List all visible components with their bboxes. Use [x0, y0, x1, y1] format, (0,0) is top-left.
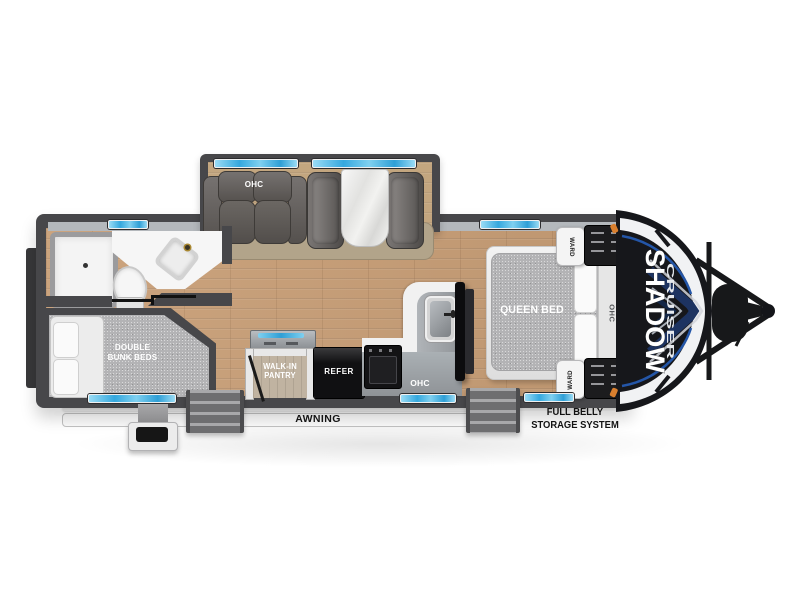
bathroom-door-stop — [151, 295, 154, 305]
awning-label: AWNING — [283, 413, 353, 425]
sofa-seat-cushion — [254, 200, 291, 244]
entry-steps-main — [186, 390, 244, 433]
refrigerator-label: REFER — [314, 367, 364, 376]
floorplan-canvas: AWNING FULL BELLY STORAGE SYSTEM OHC — [0, 0, 800, 600]
wardrobe-rear-label: WARD — [568, 237, 574, 257]
outdoor-griddle-top — [136, 427, 168, 442]
kitchen-ohc-label: OHC — [398, 379, 442, 389]
bunk-pillow — [53, 359, 79, 395]
refrigerator: REFER — [314, 348, 364, 398]
shower-drain — [83, 263, 88, 268]
window-bedroom-top — [480, 220, 540, 229]
window-slide-dinette — [312, 159, 416, 168]
walk-in-pantry-label: WALK-IN PANTRY — [252, 362, 309, 380]
pantry-counter-handle — [264, 342, 276, 345]
sink-faucet — [185, 245, 190, 250]
outdoor-griddle-mount — [138, 404, 168, 424]
propane-tank-cover — [712, 284, 748, 342]
kitchen-sink — [425, 296, 456, 342]
dinette-table — [341, 169, 389, 247]
pantry-counter-light — [258, 333, 304, 338]
bed-pillow — [574, 259, 597, 313]
window-bathroom-top — [108, 220, 148, 229]
tv-panel-back — [465, 289, 474, 374]
pantry-counter-handle — [286, 342, 298, 345]
entry-steps-bedroom — [466, 388, 520, 433]
bunkroom-label: DOUBLE BUNK BEDS — [92, 343, 173, 363]
wardrobe-front-label: WARD — [568, 370, 574, 390]
dinette-bench-left — [307, 172, 344, 249]
tv-panel — [455, 282, 465, 381]
pantry-wall-top — [246, 349, 314, 356]
stove — [364, 345, 402, 389]
wardrobe-rear: WARD — [556, 227, 585, 266]
brand-name-secondary: CRUISER — [664, 263, 675, 361]
bathroom-door-line — [152, 295, 196, 298]
queen-bed-label: QUEEN BED — [492, 304, 572, 317]
dinette-bench-right — [386, 172, 424, 249]
window-kitchen-bottom — [400, 394, 456, 403]
bathroom-wall — [44, 296, 112, 307]
awning-rail-lower — [62, 413, 482, 427]
hitch-ball — [761, 304, 775, 318]
pantry-label-line1: WALK-IN — [252, 362, 309, 371]
front-cap: SHADOW CRUISER — [596, 200, 786, 422]
window-bedroom-bottom — [524, 393, 574, 402]
bathroom-wall-stub — [222, 226, 232, 264]
kitchen-sink-basin — [430, 301, 451, 337]
bunkroom-label-line2: BUNK BEDS — [92, 353, 173, 363]
sofa-ohc-label: OHC — [224, 180, 284, 189]
bathroom-door-line — [112, 299, 152, 302]
pantry-label-line2: PANTRY — [252, 371, 309, 380]
bunk-pillow — [53, 322, 79, 358]
window-bunk-bottom — [88, 394, 176, 403]
window-slide-sofa — [214, 159, 298, 168]
